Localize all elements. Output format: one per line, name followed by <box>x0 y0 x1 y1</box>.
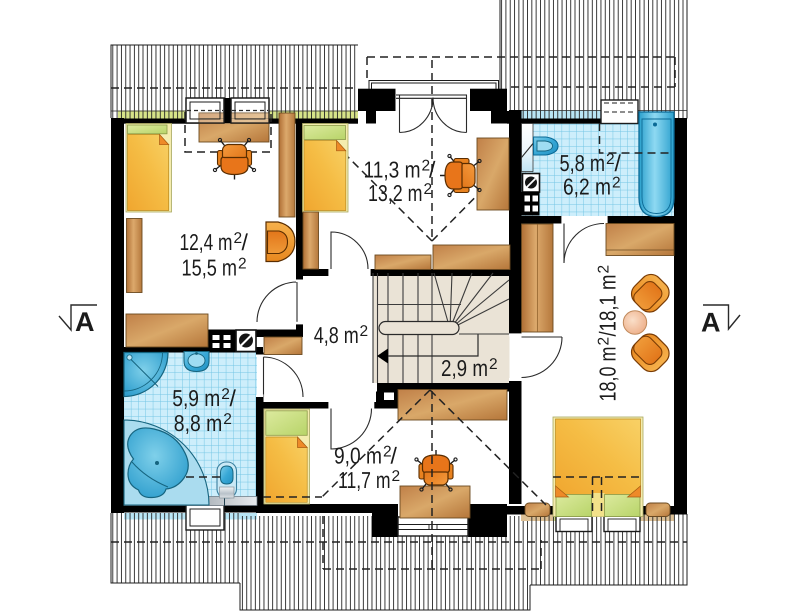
svg-text:/: / <box>230 385 237 411</box>
svg-text:15,5 m: 15,5 m <box>182 255 238 281</box>
svg-text:2: 2 <box>223 411 232 428</box>
svg-text:4,8 m: 4,8 m <box>314 322 359 348</box>
svg-text:2: 2 <box>392 468 401 485</box>
svg-text:A: A <box>701 308 721 338</box>
svg-text:18,0 m: 18,0 m <box>595 347 621 402</box>
svg-text:2: 2 <box>596 337 613 346</box>
svg-text:2: 2 <box>424 181 433 198</box>
svg-text:5,9 m: 5,9 m <box>172 385 220 411</box>
svg-text:9,0 m: 9,0 m <box>334 443 382 469</box>
svg-text:2: 2 <box>596 265 613 274</box>
svg-text:/: / <box>615 150 622 176</box>
svg-text:/: / <box>391 443 398 469</box>
svg-text:/: / <box>242 229 249 255</box>
svg-text:8,8 m: 8,8 m <box>174 410 223 436</box>
svg-text:/: / <box>429 157 436 183</box>
svg-text:2: 2 <box>238 256 247 273</box>
svg-text:2,9 m: 2,9 m <box>441 355 488 381</box>
svg-text:2: 2 <box>360 323 369 340</box>
svg-text:2: 2 <box>612 175 621 192</box>
svg-text:5,8 m: 5,8 m <box>560 150 606 176</box>
svg-text:13,2 m: 13,2 m <box>368 180 423 206</box>
svg-text:11,7 m: 11,7 m <box>338 467 391 493</box>
svg-text:/18,1 m: /18,1 m <box>595 275 621 337</box>
svg-text:A: A <box>75 307 95 337</box>
svg-text:11,3 m: 11,3 m <box>364 157 421 183</box>
svg-text:12,4 m: 12,4 m <box>180 229 233 255</box>
svg-text:6,2 m: 6,2 m <box>563 174 611 200</box>
svg-text:2: 2 <box>489 356 498 373</box>
svg-text:2: 2 <box>606 151 615 168</box>
